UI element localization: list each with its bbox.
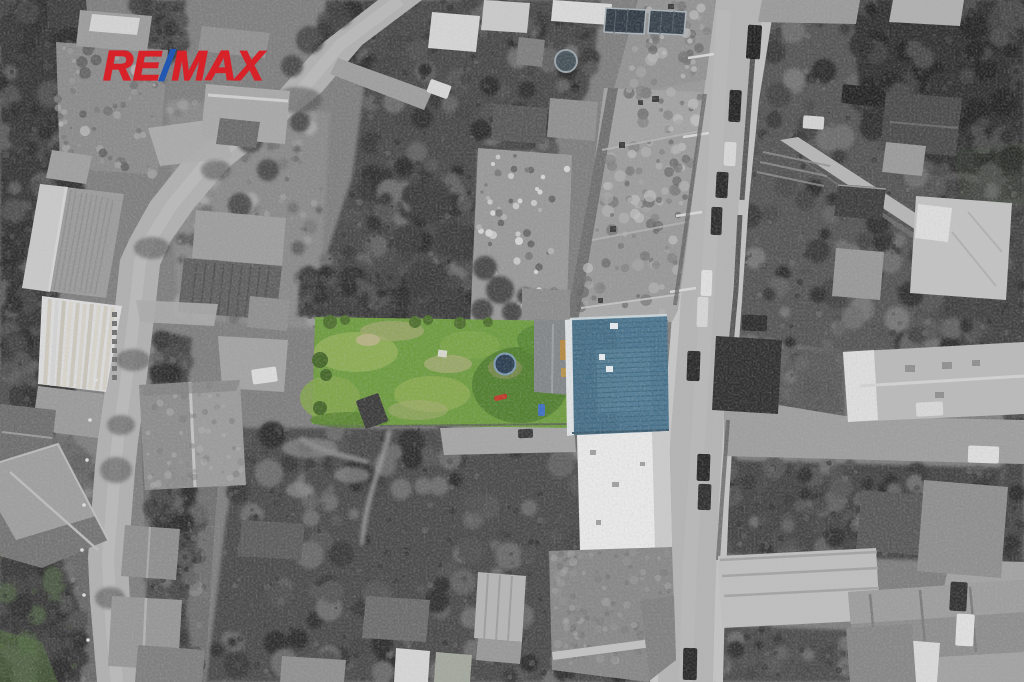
svg-text:RE/MAX: RE/MAX [103,42,267,89]
